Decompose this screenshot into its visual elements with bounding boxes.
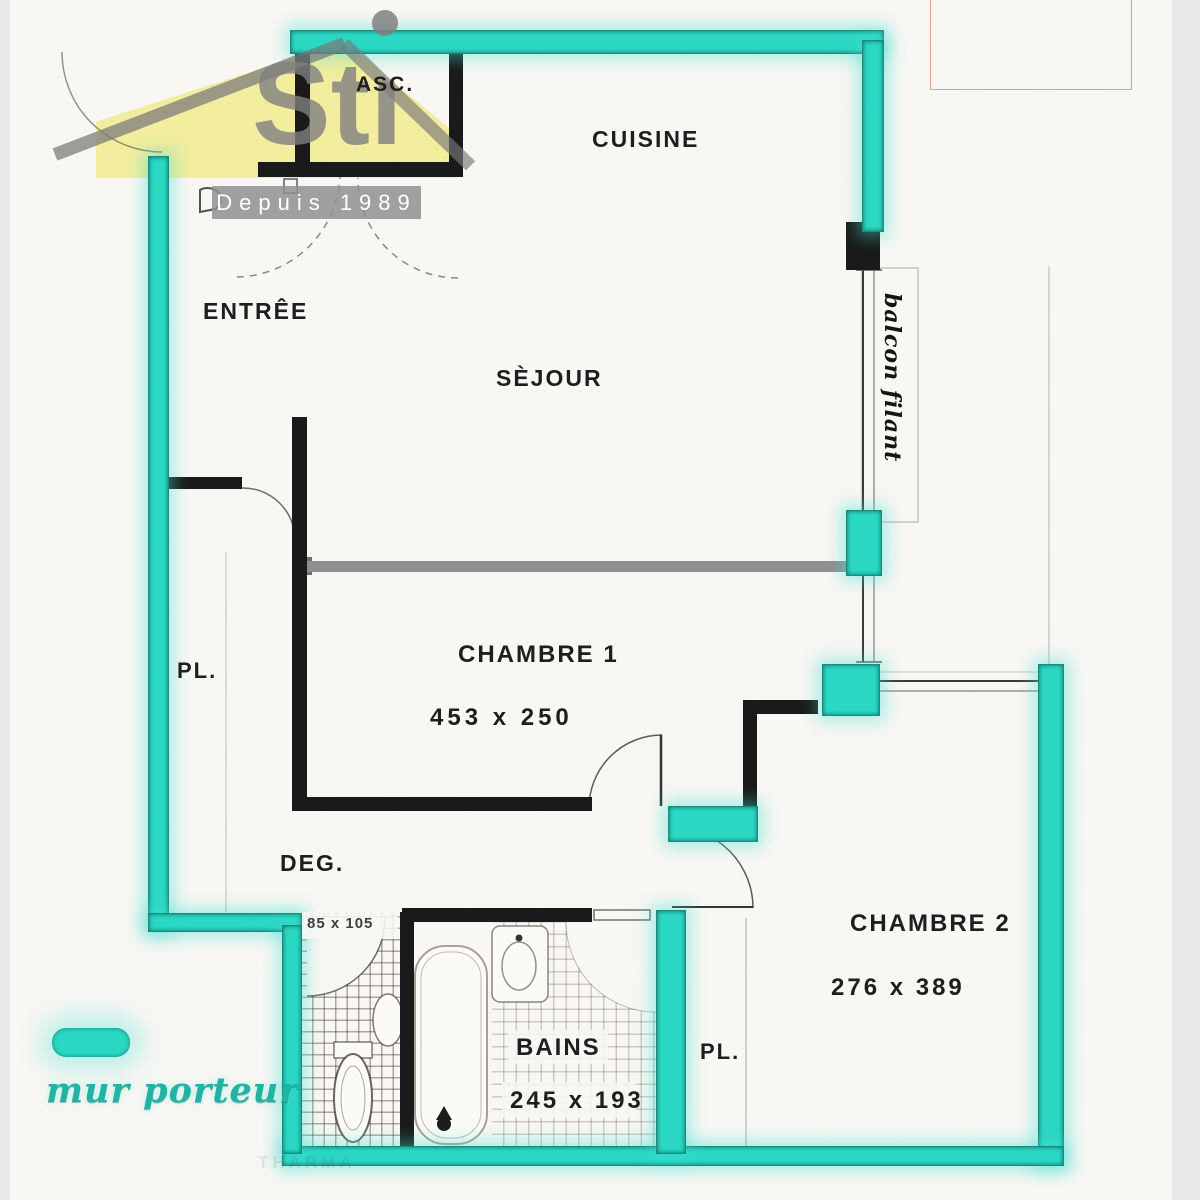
wall-bains-right bbox=[656, 910, 686, 1154]
room-dim-chambre2: 276 x 389 bbox=[831, 974, 965, 1002]
chambre1-door-arc bbox=[589, 735, 662, 808]
wc-sink bbox=[373, 994, 403, 1046]
wall-left-bottom-jog bbox=[148, 913, 302, 932]
logo-letters: Stı bbox=[252, 45, 403, 163]
wall-wc-left bbox=[282, 925, 302, 1154]
chambre1-wall-bottom bbox=[292, 797, 592, 811]
room-label-chambre2: CHAMBRE 2 bbox=[850, 910, 1011, 938]
bathtub bbox=[415, 946, 487, 1144]
toilet-bowl bbox=[334, 1054, 372, 1142]
floor-plan: Stı Depuis 1989 ASC. CUISINE ENTRÊE SÈJO… bbox=[0, 0, 1200, 1200]
room-label-cuisine: CUISINE bbox=[592, 126, 699, 153]
wall-right-upper bbox=[862, 40, 884, 232]
room-label-chambre1: CHAMBRE 1 bbox=[458, 641, 619, 669]
room-label-asc: ASC. bbox=[356, 73, 414, 97]
watermark-text: THARMA bbox=[258, 1153, 356, 1173]
chambre1-wall-left bbox=[292, 417, 307, 810]
bains-corner-blank bbox=[566, 922, 656, 1012]
room-label-entree: ENTRÊE bbox=[203, 298, 308, 325]
room-dim-chambre1: 453 x 250 bbox=[430, 704, 573, 732]
entree-wall-stub bbox=[160, 477, 242, 489]
logo-tagline-banner: Depuis 1989 bbox=[212, 186, 421, 219]
room-label-pl-left: PL. bbox=[177, 658, 217, 684]
room-label-deg: DEG. bbox=[280, 850, 344, 877]
wall-left bbox=[148, 156, 169, 932]
room-dim-wc: 85 x 105 bbox=[307, 915, 373, 932]
bathroom-wall-top bbox=[402, 908, 592, 922]
wall-chambre2-door-stub bbox=[668, 806, 758, 842]
wall-right-corner-block bbox=[822, 664, 880, 716]
plan-linework bbox=[0, 0, 1200, 1200]
wall-right-mid-block bbox=[846, 510, 882, 576]
wc-bath-divider-wall bbox=[400, 912, 414, 1146]
balcony-label: balcon filant bbox=[879, 293, 905, 462]
chambre2-wall-left bbox=[743, 700, 757, 806]
bathtub-drain bbox=[437, 1117, 451, 1131]
room-label-bains: BAINS bbox=[516, 1034, 601, 1062]
bains-sink-faucet bbox=[516, 935, 523, 942]
legend-label: mur porteur bbox=[46, 1070, 299, 1111]
room-dim-bains: 245 x 193 bbox=[510, 1087, 644, 1115]
room-label-pl-right: PL. bbox=[700, 1039, 740, 1065]
room-label-sejour: SÈJOUR bbox=[496, 365, 603, 392]
sejour-door-arc bbox=[242, 488, 295, 540]
wall-chambre2-right bbox=[1038, 664, 1064, 1166]
sejour-chambre1-partition bbox=[302, 561, 852, 572]
logo-i-dot-icon bbox=[372, 10, 398, 36]
legend-swatch-mur-porteur bbox=[52, 1028, 130, 1057]
bains-door-leaf bbox=[594, 910, 650, 920]
